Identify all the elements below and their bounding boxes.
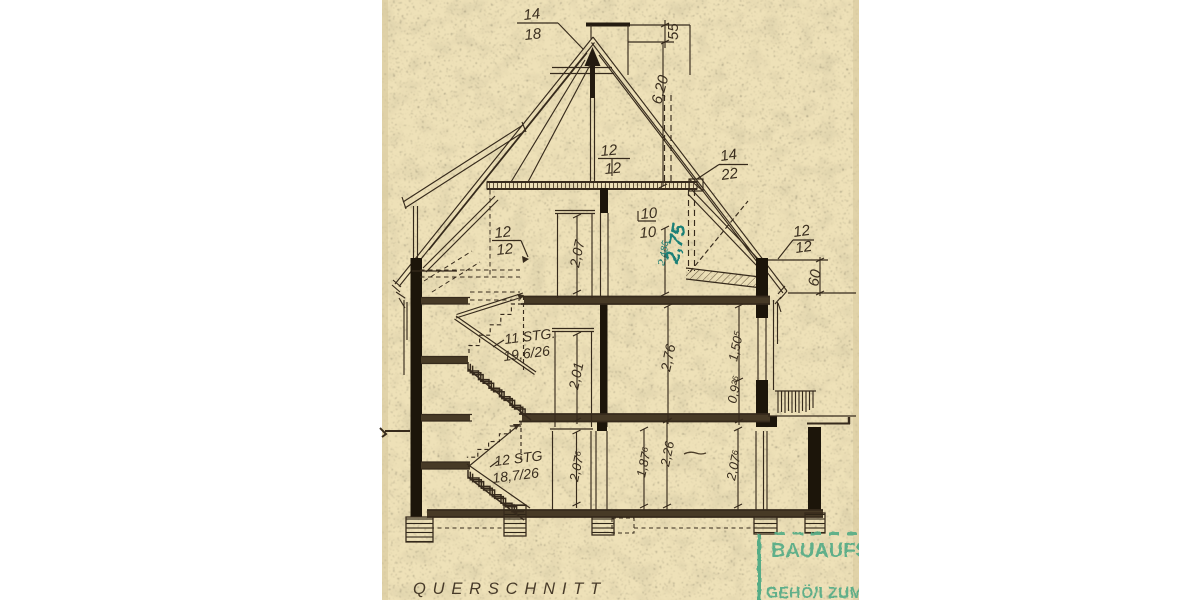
svg-text:14: 14 xyxy=(523,5,541,24)
svg-text:GEHÖ/I ZUM: GEHÖ/I ZUM xyxy=(766,585,863,600)
svg-text:10: 10 xyxy=(640,205,659,223)
svg-text:14: 14 xyxy=(719,146,738,165)
svg-text:BAUAUFS: BAUAUFS xyxy=(771,540,869,562)
svg-text:12: 12 xyxy=(600,142,619,160)
svg-text:22: 22 xyxy=(719,165,740,184)
svg-text:12: 12 xyxy=(604,160,623,178)
svg-text:10: 10 xyxy=(639,224,658,242)
svg-text:12: 12 xyxy=(494,223,513,242)
svg-text:55: 55 xyxy=(665,23,682,40)
svg-text:12: 12 xyxy=(794,238,814,257)
svg-text:QUERSCHNITT: QUERSCHNITT xyxy=(413,580,607,598)
svg-text:18: 18 xyxy=(524,25,543,44)
svg-text:12: 12 xyxy=(496,240,515,259)
